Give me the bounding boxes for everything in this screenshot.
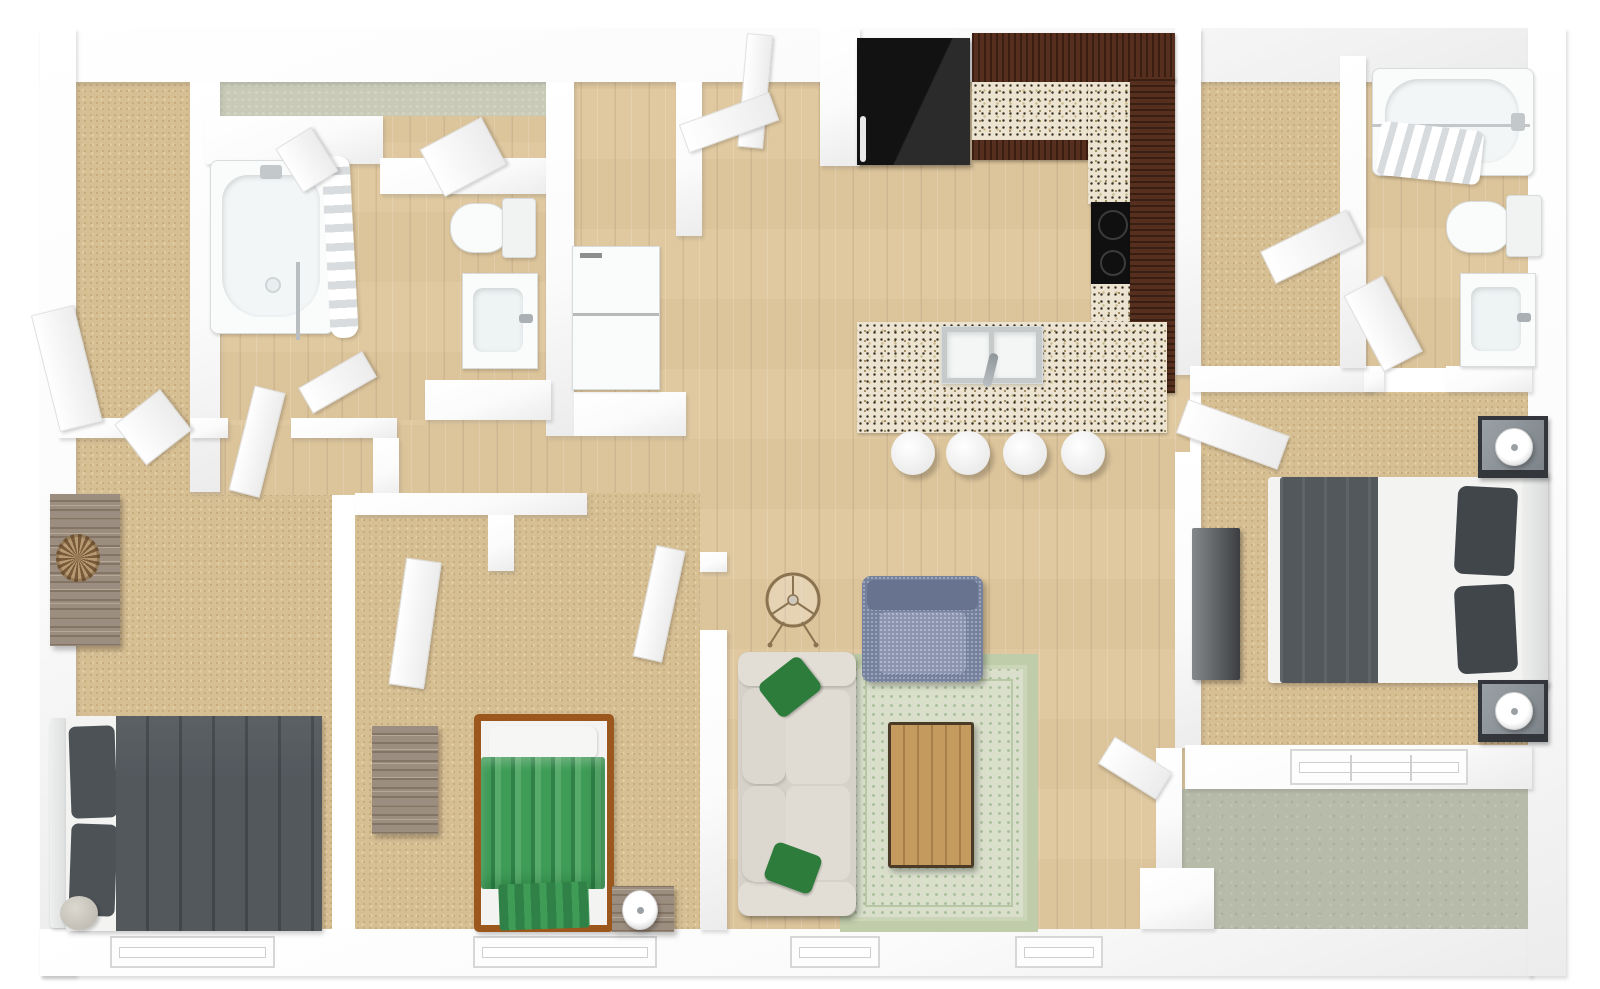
- bathtub-drain: [265, 277, 281, 293]
- wall-bed2-closet-stub: [488, 515, 514, 571]
- bar-stool-2: [946, 431, 990, 475]
- wall-outer-top: [40, 28, 1530, 82]
- vanity-basin: [473, 288, 523, 352]
- wall-bath1-south-a: [190, 418, 228, 438]
- cooktop-burner: [1100, 250, 1126, 276]
- floor-plan-canvas: [0, 0, 1600, 989]
- vanity-faucet: [1517, 313, 1531, 322]
- wall-bath1-south-b: [291, 418, 397, 438]
- wall-wd-closet-south: [574, 392, 686, 436]
- kitchen-counter-right-upper: [1088, 82, 1130, 204]
- cooktop-burner: [1098, 210, 1128, 240]
- armchair-seat: [879, 612, 966, 674]
- bed-blanket: [116, 716, 322, 931]
- wall-stub-bed2: [373, 438, 399, 498]
- window-pane: [1024, 947, 1094, 958]
- coffee-table: [888, 722, 974, 868]
- toilet-bowl: [450, 203, 510, 253]
- bed-headboard: [1524, 471, 1548, 689]
- bathtub-faucet: [260, 165, 282, 179]
- toilet-right: [1446, 195, 1542, 257]
- toilet-tank: [502, 198, 536, 258]
- island-double-sink: [941, 326, 1043, 384]
- bed-bedroom2: [474, 714, 614, 932]
- toilet-bowl: [1446, 201, 1512, 253]
- bathtub-faucet: [1511, 113, 1525, 131]
- sofa: [738, 652, 856, 916]
- kitchen-counter-right-lower: [1091, 284, 1131, 324]
- bed-pillow: [1454, 583, 1519, 674]
- window-mullion: [1350, 755, 1352, 781]
- shower-curtain-right: [1375, 121, 1484, 186]
- toilet-tank: [1506, 195, 1542, 257]
- wall-below-closet-tr: [1190, 366, 1372, 392]
- bar-stool-3: [1003, 431, 1047, 475]
- refrigerator: [857, 38, 970, 165]
- bar-stool-4: [1061, 431, 1105, 475]
- window-living-1: [790, 936, 880, 968]
- round-ottoman: [60, 896, 98, 930]
- table-lamp: [622, 890, 658, 930]
- armchair-back: [867, 580, 978, 610]
- wall-bed2-closet-top: [355, 493, 587, 515]
- bed-pillow: [68, 725, 117, 819]
- bathtub-left: [210, 160, 334, 334]
- wall-wd-closet-east: [676, 82, 702, 236]
- window-living-2: [1015, 936, 1103, 968]
- window-pane: [119, 947, 266, 958]
- master-dresser: [1192, 528, 1240, 680]
- bed-blanket: [1280, 477, 1378, 683]
- wall-kitchen-east: [1175, 28, 1201, 375]
- bed-pillow: [489, 726, 597, 760]
- nightstand-master-top: [1478, 416, 1548, 478]
- window-pane: [799, 947, 871, 958]
- floor-patio: [1182, 789, 1532, 930]
- round-decor-stand: [762, 570, 824, 648]
- potted-plant: [56, 534, 100, 582]
- window-patio-slider: [1290, 749, 1468, 785]
- nightstand-master-bottom: [1478, 680, 1548, 742]
- window-pane: [482, 947, 648, 958]
- wall-bed2-east-stub: [700, 552, 727, 572]
- wall-fridge-nook: [820, 28, 860, 166]
- refrigerator-handle: [860, 116, 866, 162]
- floor-walkin-closet: [1201, 56, 1341, 368]
- wall-bed2-east: [700, 630, 727, 930]
- kitchen-cabinet-top-run: [972, 33, 1175, 82]
- window-mullion: [1410, 755, 1412, 781]
- wall-patio-corner: [1140, 868, 1214, 929]
- stacked-washer-dryer: [572, 246, 660, 390]
- window-pane: [1299, 762, 1459, 773]
- table-lamp: [1495, 428, 1533, 466]
- wall-vanity1-south: [425, 380, 551, 420]
- window-bedroom2: [473, 936, 657, 968]
- window-bedroom1: [110, 936, 275, 968]
- washer-dryer-control: [580, 253, 602, 258]
- bed-blanket-green-folded: [498, 881, 590, 930]
- kitchen-cabinet-inner-band: [972, 140, 1088, 160]
- vanity-left: [462, 273, 538, 369]
- bed-pillow: [1454, 485, 1519, 576]
- washer-dryer-divider: [573, 313, 659, 316]
- master-bed: [1268, 477, 1550, 683]
- toilet-left: [450, 198, 534, 256]
- sink-basin-left: [947, 332, 989, 378]
- cooktop: [1091, 202, 1131, 284]
- wall-below-bath2-b: [1446, 366, 1532, 392]
- shower-rod-left: [296, 262, 300, 340]
- bar-stool-1: [891, 431, 935, 475]
- vanity-right: [1460, 273, 1536, 367]
- wall-below-bath2-a: [1364, 366, 1384, 392]
- table-lamp: [1495, 692, 1533, 730]
- vanity-basin: [1471, 287, 1521, 351]
- bed-blanket-green: [481, 757, 605, 889]
- armchair: [862, 576, 983, 682]
- bathtub-basin: [222, 175, 320, 317]
- vanity-faucet: [519, 314, 533, 323]
- dresser-bedroom2: [372, 726, 438, 834]
- sink-basin-right: [994, 332, 1036, 378]
